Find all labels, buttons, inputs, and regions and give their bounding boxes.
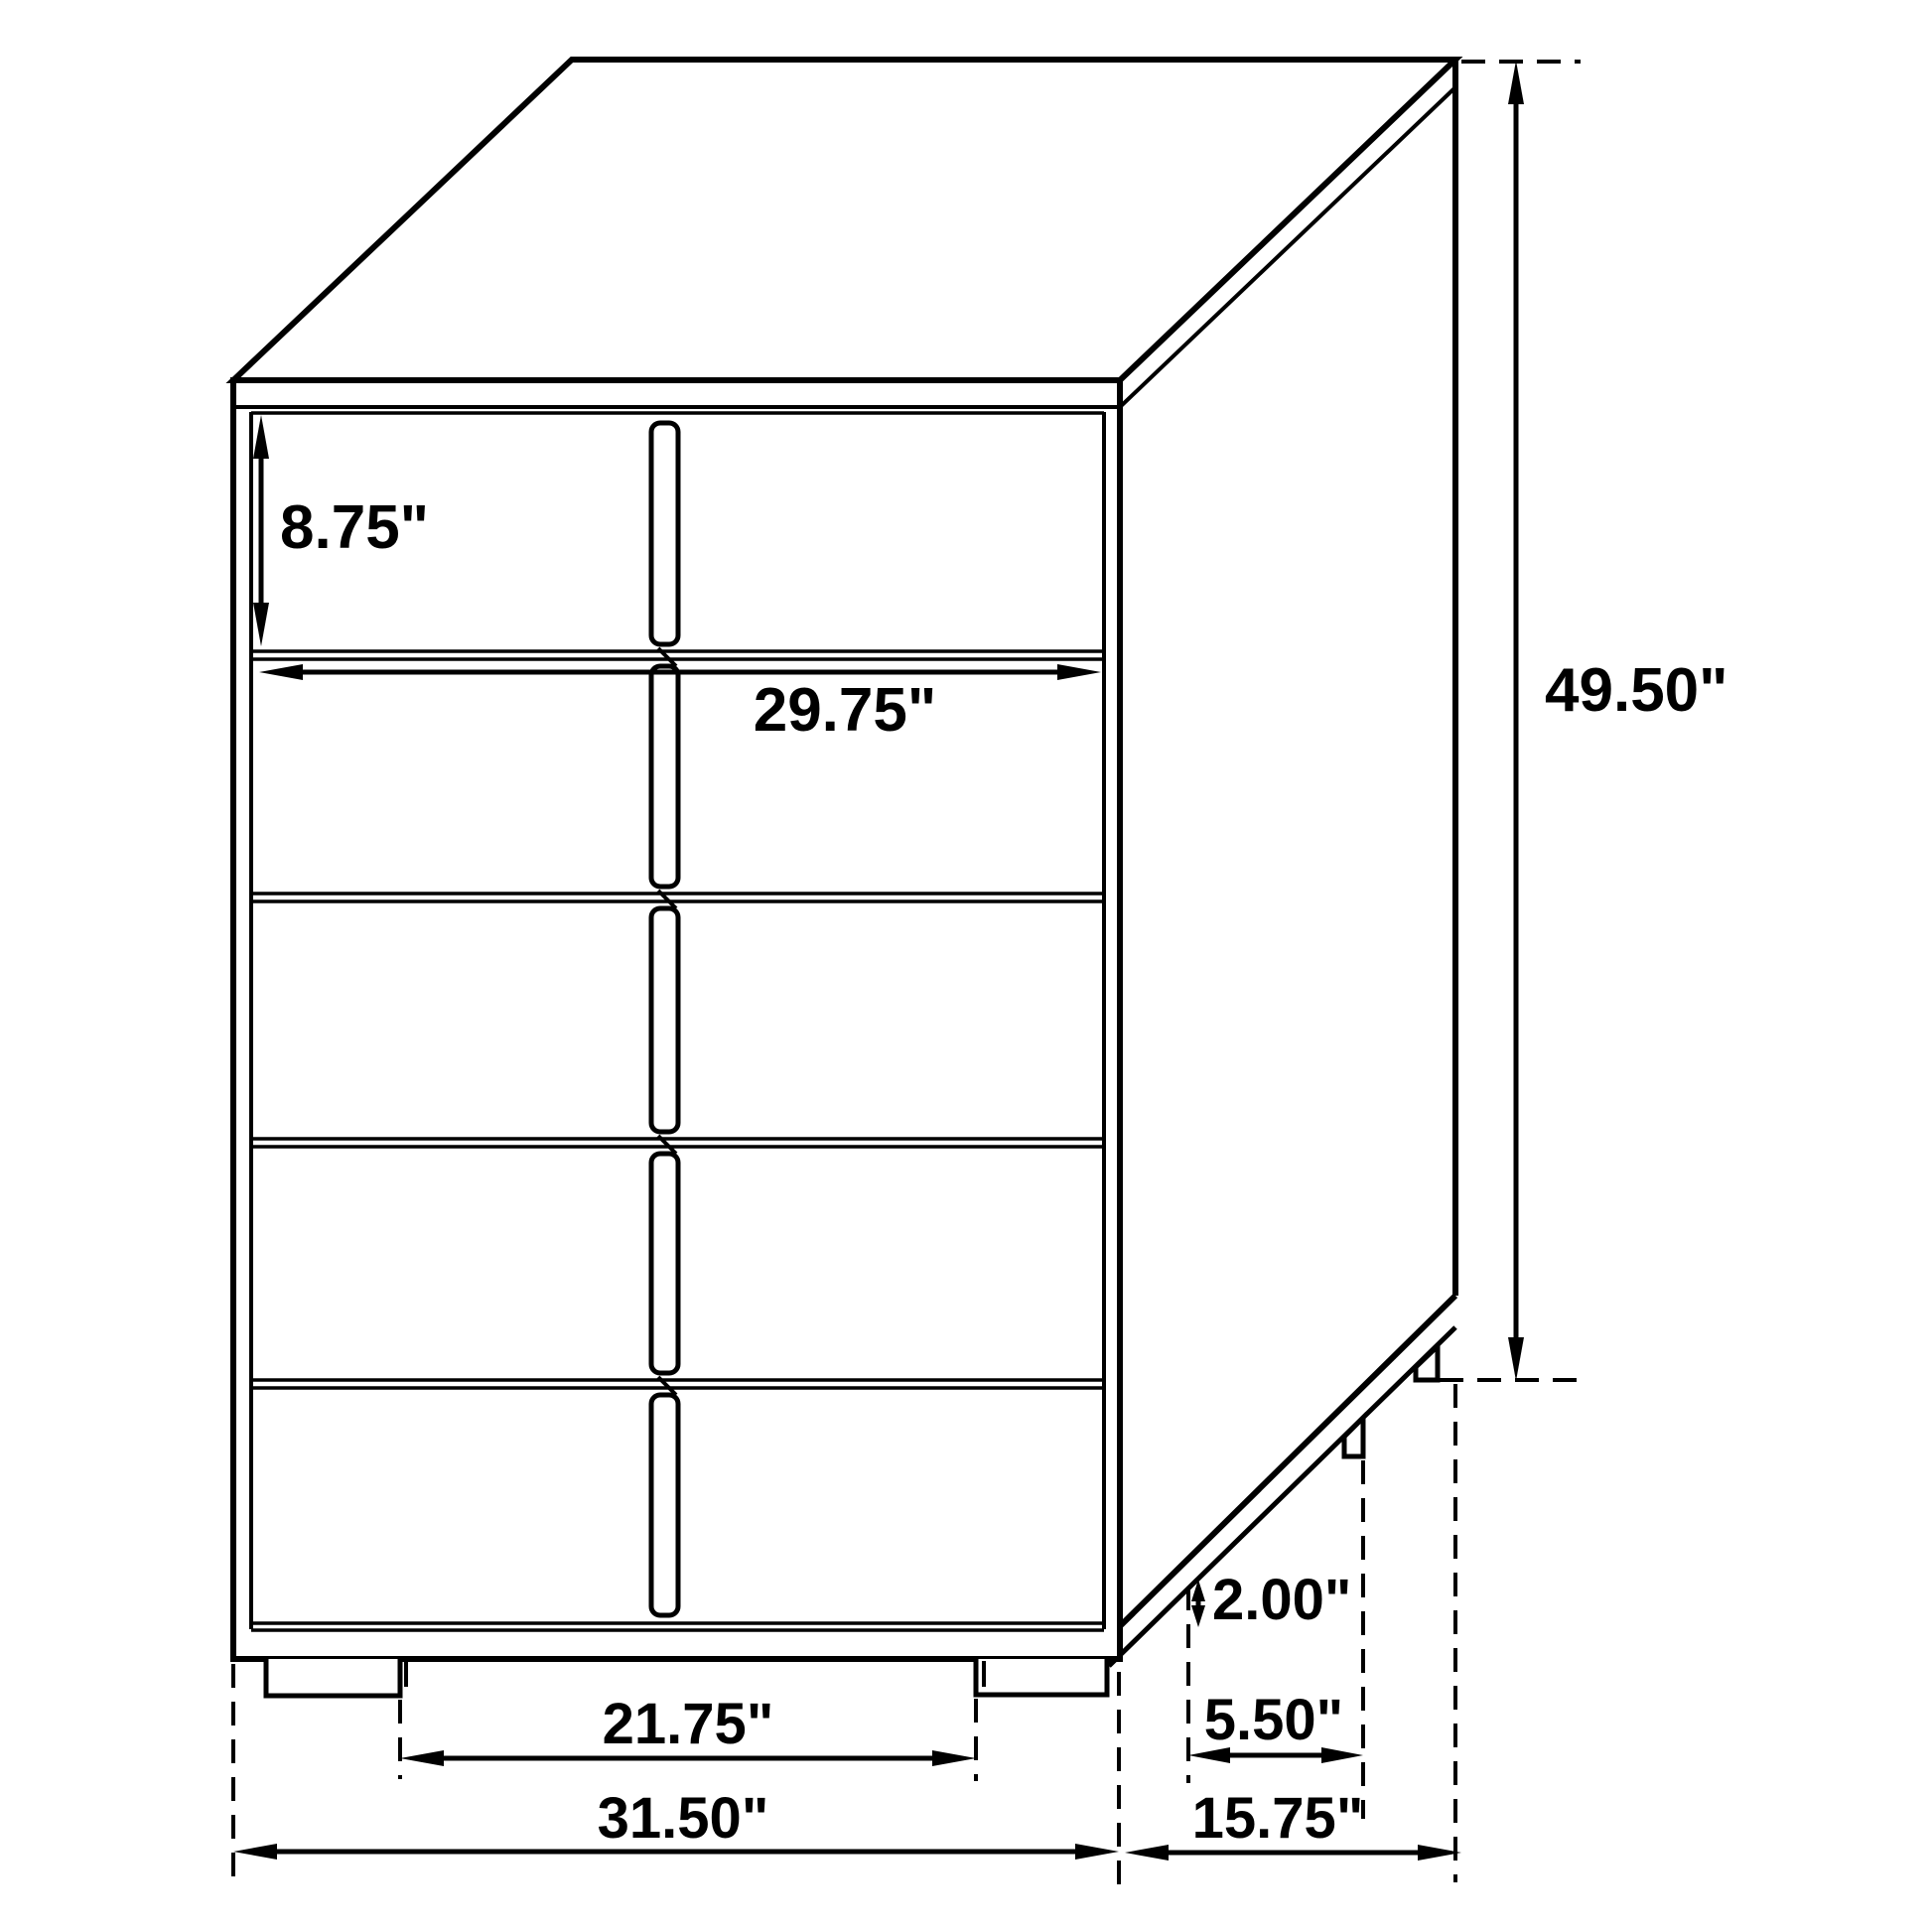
drawer-handle-1	[651, 423, 678, 644]
dim-front-feet-span-label: 21.75"	[603, 1692, 774, 1756]
cabinet	[233, 60, 1455, 1696]
dim-foot-height: 2.00"	[1191, 1568, 1351, 1632]
arrow-up-icon	[1508, 61, 1524, 104]
dim-side-foot-inset-label: 5.50"	[1204, 1688, 1343, 1752]
drawer-handle-5	[651, 1395, 678, 1615]
dim-overall-height-label: 49.50"	[1545, 656, 1728, 725]
arrow-left-icon	[1125, 1845, 1169, 1861]
drawer-handles	[651, 423, 678, 1615]
arrow-left-icon	[400, 1750, 444, 1766]
dim-overall-width: 31.50"	[233, 1786, 1119, 1860]
arrow-down-icon	[1191, 1605, 1205, 1627]
arrow-left-icon	[233, 1844, 277, 1860]
dimension-diagram: 8.75" 29.75" 49.50" 2.00" 5.	[0, 0, 1932, 1932]
front-foot-right	[976, 1659, 1107, 1695]
dim-overall-width-label: 31.50"	[598, 1786, 769, 1851]
drawer-handle-4	[651, 1154, 678, 1373]
dim-drawer-height-label: 8.75"	[280, 493, 429, 562]
dim-side-foot-inset: 5.50"	[1188, 1688, 1363, 1763]
front-foot-left	[266, 1659, 400, 1696]
arrow-right-icon	[932, 1750, 976, 1766]
arrow-down-icon	[1508, 1337, 1524, 1381]
front-feet	[266, 1659, 1107, 1696]
dim-drawer-width-label: 29.75"	[754, 676, 937, 745]
top-panel	[233, 60, 1455, 380]
drawer-handle-3	[651, 908, 678, 1132]
drawer-handle-2	[651, 666, 678, 887]
side-foot-rear	[1416, 1346, 1438, 1380]
chest-line-drawing: 8.75" 29.75" 49.50" 2.00" 5.	[0, 0, 1932, 1932]
dim-overall-depth-label: 15.75"	[1192, 1786, 1364, 1851]
dim-overall-height: 49.50"	[1508, 61, 1728, 1381]
dim-front-feet-span: 21.75"	[400, 1692, 976, 1766]
arrow-right-icon	[1075, 1844, 1119, 1860]
dim-overall-depth: 15.75"	[1125, 1786, 1461, 1861]
dim-foot-height-label: 2.00"	[1212, 1568, 1351, 1632]
